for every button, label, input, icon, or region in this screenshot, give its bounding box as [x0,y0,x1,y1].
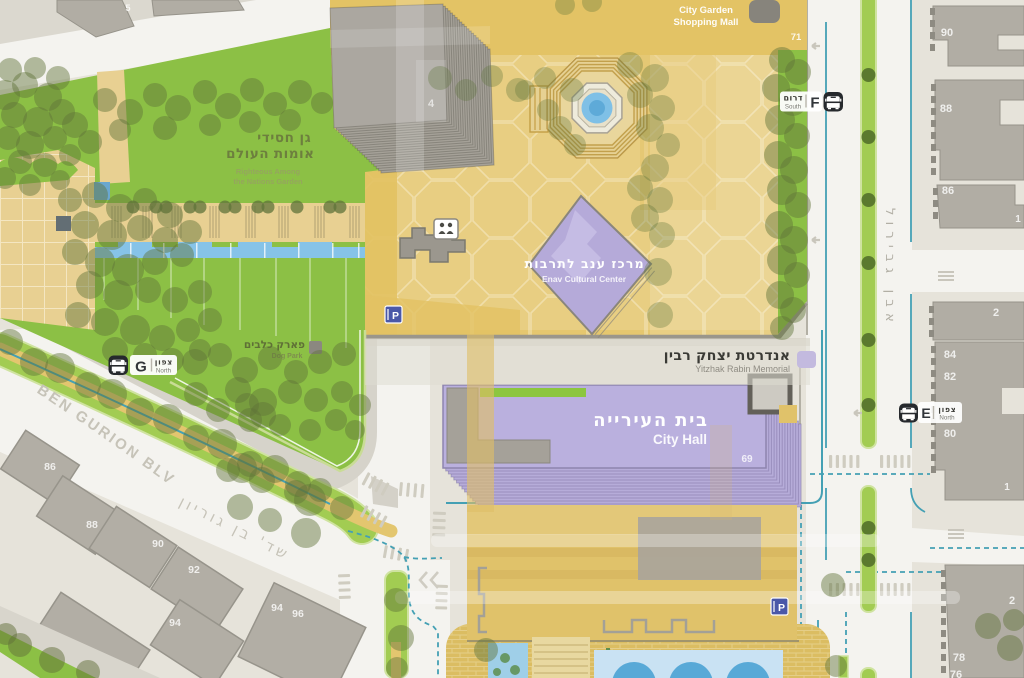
svg-text:78: 78 [953,652,965,664]
svg-text:86: 86 [942,185,954,197]
svg-text:86: 86 [44,461,56,473]
svg-text:2: 2 [1009,595,1015,607]
svg-text:Righteous Among: Righteous Among [236,167,301,176]
svg-text:South: South [785,104,802,111]
svg-text:2: 2 [993,307,999,319]
svg-text:5: 5 [125,3,130,13]
svg-text:1: 1 [1015,214,1021,225]
svg-text:City Garden: City Garden [679,5,733,16]
svg-text:90: 90 [152,538,164,550]
svg-text:North: North [156,368,172,375]
svg-text:88: 88 [86,519,98,531]
svg-text:69: 69 [741,454,753,465]
svg-text:82: 82 [944,371,956,383]
svg-text:90: 90 [941,27,953,39]
svg-text:the Nations Garden: the Nations Garden [233,177,303,186]
svg-text:F: F [810,95,819,112]
svg-text:Yitzhak Rabin Memorial: Yitzhak Rabin Memorial [695,364,790,374]
svg-text:Shopping Mall: Shopping Mall [674,17,739,28]
svg-text:96: 96 [292,608,304,620]
svg-text:North: North [939,415,955,422]
svg-text:94: 94 [271,602,283,614]
svg-text:94: 94 [169,617,181,629]
svg-text:City Hall: City Hall [653,432,707,447]
svg-text:E: E [921,405,930,421]
svg-text:80: 80 [944,428,956,440]
svg-text:88: 88 [940,103,952,115]
svg-text:G: G [135,359,147,376]
svg-text:84: 84 [944,349,957,361]
svg-text:4: 4 [428,98,435,110]
svg-text:76: 76 [950,669,962,678]
svg-text:P: P [778,602,785,614]
svg-text:Enav Cultural Center: Enav Cultural Center [542,274,627,284]
svg-text:71: 71 [791,32,802,43]
svg-text:1: 1 [1004,482,1010,493]
svg-text:92: 92 [188,564,200,576]
svg-text:P: P [392,310,399,322]
